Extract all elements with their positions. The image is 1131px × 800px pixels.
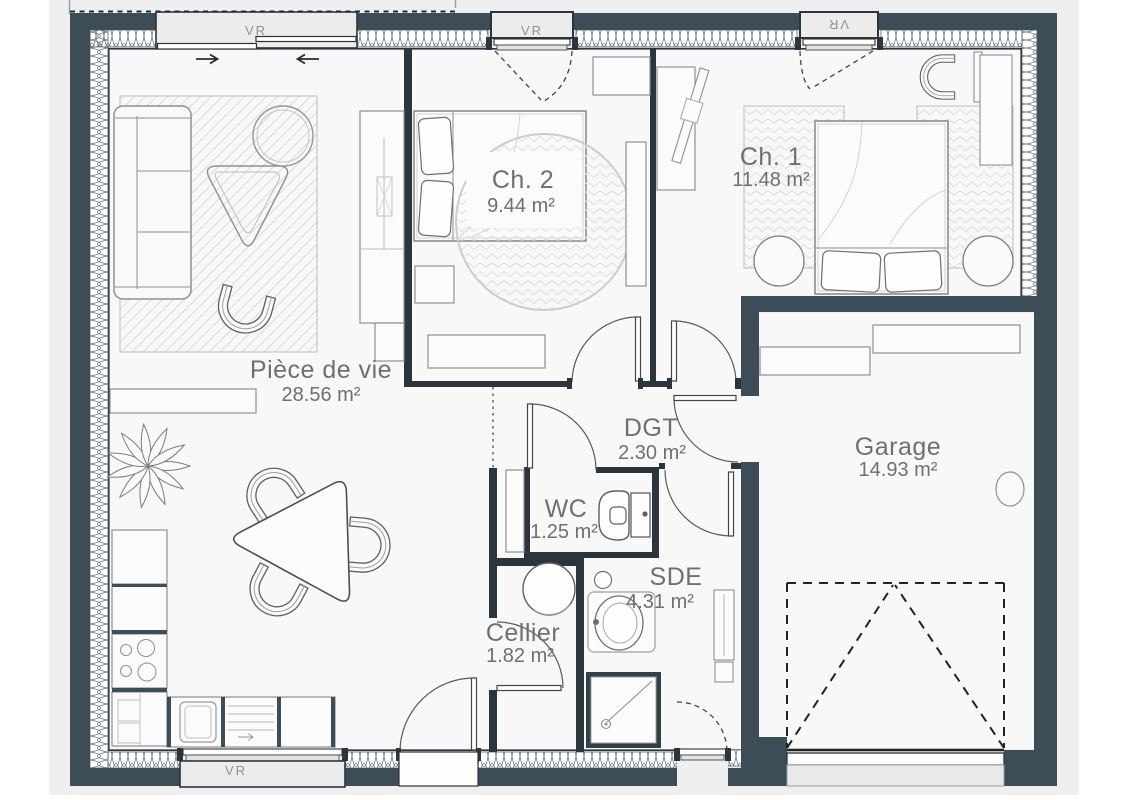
svg-text:VR: VR xyxy=(245,23,267,38)
svg-text:28.56 m²: 28.56 m² xyxy=(282,384,361,406)
svg-text:SDE: SDE xyxy=(650,563,703,591)
svg-text:9.44 m²: 9.44 m² xyxy=(487,195,555,217)
svg-text:Ch. 2: Ch. 2 xyxy=(492,166,554,194)
svg-text:WC: WC xyxy=(545,495,588,523)
svg-text:Garage: Garage xyxy=(855,433,941,461)
svg-text:4.31 m²: 4.31 m² xyxy=(626,591,694,613)
svg-text:VR: VR xyxy=(827,17,849,32)
svg-text:Pièce de vie: Pièce de vie xyxy=(250,356,392,384)
svg-text:1.25 m²: 1.25 m² xyxy=(530,521,598,543)
svg-text:1.82 m²: 1.82 m² xyxy=(486,645,554,667)
svg-text:Cellier: Cellier xyxy=(486,619,560,647)
svg-text:11.48 m²: 11.48 m² xyxy=(732,169,810,191)
svg-text:DGT: DGT xyxy=(624,414,678,442)
svg-text:14.93 m²: 14.93 m² xyxy=(859,459,938,481)
svg-text:Ch. 1: Ch. 1 xyxy=(740,143,802,171)
svg-text:VR: VR xyxy=(521,23,543,38)
svg-text:VR: VR xyxy=(225,763,247,778)
svg-text:2.30 m²: 2.30 m² xyxy=(618,442,686,464)
